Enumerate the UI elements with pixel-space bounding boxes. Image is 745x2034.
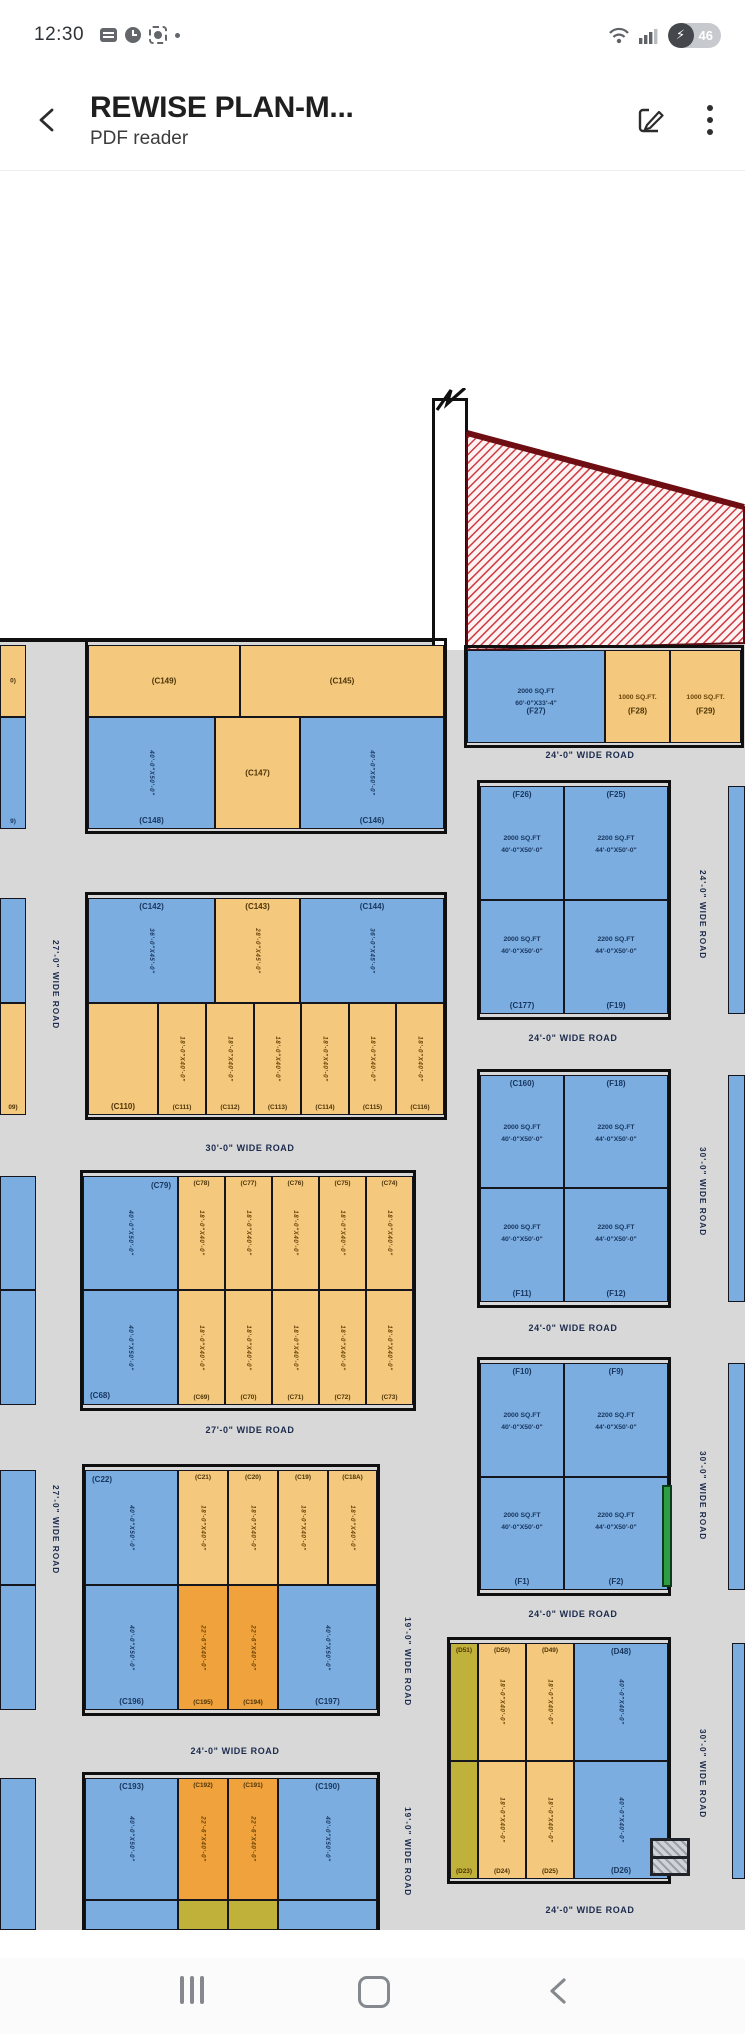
screen-capture-icon	[149, 26, 167, 44]
plot-D24: (D24)18'-0"X40'-0"	[478, 1761, 526, 1879]
plot-label: (C191)	[243, 1782, 263, 1789]
plot-partial	[228, 1900, 278, 1930]
plot-dimensions: 18'-0"X40'-0"	[245, 1210, 252, 1256]
road-label: 24'-0" WIDE ROAD	[505, 750, 675, 760]
plot-partial	[732, 1643, 745, 1879]
battery-percent: 46	[694, 28, 721, 43]
plot-label: (C197)	[315, 1697, 339, 1706]
road-label: 30'-0" WIDE ROAD	[165, 1143, 335, 1153]
plot-dimensions: 18'-0"X40'-0"	[250, 1505, 257, 1551]
plot-F18: (F18)2200 SQ.FT44'-0"X50'-0"	[564, 1075, 668, 1188]
plot-C195: (C195)22'-6"X40'-0"	[178, 1585, 228, 1710]
plot-dimensions: 18'-0"X40'-0"	[292, 1210, 299, 1256]
plot-partial	[0, 1470, 36, 1585]
plot-F27: (F27)2000 SQ.FT60'-0"X33'-4"	[467, 650, 605, 743]
road-label: 27'-0" WIDE ROAD	[165, 1425, 335, 1435]
edit-button[interactable]	[633, 102, 669, 138]
plot-C75: (C75)18'-0"X40'-0"	[319, 1176, 366, 1290]
plot-label: (C18A)	[342, 1474, 363, 1481]
plot-dimensions: 18'-0"X40'-0"	[300, 1505, 307, 1551]
plot-partial	[178, 1900, 228, 1930]
plot-dimensions: 36'-0"X45'-0"	[148, 928, 155, 974]
plot-dimensions: 36'-0"X45'-0"	[369, 928, 376, 974]
plot-dimensions: 18'-0"X40'-0"	[200, 1505, 207, 1551]
plot-C68: (C68)40'-0"X50'-0"	[83, 1290, 178, 1405]
plot-dimensions: 2000 SQ.FT40'-0"X50'-0"	[481, 1222, 563, 1246]
plot-label: (F12)	[606, 1289, 625, 1298]
plot-C72: (C72)18'-0"X40'-0"	[319, 1290, 366, 1405]
plot-dimensions: 2200 SQ.FT44'-0"X50'-0"	[565, 1410, 667, 1434]
plot-dimensions: 18'-0"X40'-0"	[227, 1036, 234, 1082]
system-status-icons: ⚡ 46	[608, 23, 721, 48]
plot-label: (F25)	[606, 790, 625, 799]
road-label: 19'-0" WIDE ROAD	[395, 1592, 413, 1732]
plot-F2: (F2)2200 SQ.FT44'-0"X50'-0"	[564, 1477, 668, 1590]
plot-dimensions: 40'-0"X50'-0"	[127, 1325, 134, 1371]
notification-icons	[100, 26, 180, 44]
plot-C71: (C71)18'-0"X40'-0"	[272, 1290, 319, 1405]
plot-label: (C20)	[245, 1474, 261, 1481]
plot-label: (F2)	[609, 1577, 624, 1586]
plot-C147: (C147)	[215, 717, 300, 829]
plot-F28: (F28)1000 SQ.FT.	[605, 650, 670, 743]
plot-dimensions: 2000 SQ.FT40'-0"X50'-0"	[481, 833, 563, 857]
road-label: 24'-0" WIDE ROAD	[488, 1609, 658, 1619]
plot-C160: (C160)2000 SQ.FT40'-0"X50'-0"	[480, 1075, 564, 1188]
kebab-dot	[707, 105, 713, 111]
plot-label: (C143)	[245, 902, 269, 911]
plot-label: 9)	[10, 818, 16, 825]
plot-C197: (C197)40'-0"X50'-0"	[278, 1585, 377, 1710]
plot-label: (F18)	[606, 1079, 625, 1088]
plot-label: (D51)	[456, 1647, 472, 1654]
green-strip	[662, 1485, 672, 1587]
plot-dimensions: 2000 SQ.FT60'-0"X33'-4"	[468, 686, 604, 710]
plot-C76: (C76)18'-0"X40'-0"	[272, 1176, 319, 1290]
recents-bar	[200, 1976, 204, 2004]
navigation-bar	[0, 1958, 745, 2034]
plot-dimensions: 2200 SQ.FT44'-0"X50'-0"	[565, 934, 667, 958]
plot-label: (D48)	[611, 1647, 631, 1656]
plot-label: (D24)	[494, 1868, 510, 1875]
plot-label: (C142)	[139, 902, 163, 911]
plot-F12: (F12)2200 SQ.FT44'-0"X50'-0"	[564, 1188, 668, 1302]
more-options-button[interactable]	[703, 101, 717, 139]
plot-dimensions: 18'-0"X40'-0"	[349, 1505, 356, 1551]
plot-C115: (C115)18'-0"X40'-0"	[349, 1003, 396, 1115]
plot-C19: (C19)18'-0"X40'-0"	[278, 1470, 328, 1585]
back-button[interactable]	[34, 105, 62, 135]
plot-label: (C192)	[193, 1782, 213, 1789]
kebab-dot	[707, 129, 713, 135]
plot-partial	[85, 1900, 178, 1930]
road-label: 24'-0" WIDE ROAD	[488, 1323, 658, 1333]
plot-C22: (C22)40'-0"X50'-0"	[85, 1470, 178, 1585]
plot-D25: (D25)18'-0"X40'-0"	[526, 1761, 574, 1879]
plot-dimensions: 18'-0"X40'-0"	[198, 1210, 205, 1256]
plot-label: (D26)	[611, 1866, 631, 1875]
plot-dimensions: 1000 SQ.FT.	[671, 692, 740, 704]
clock: 12:30	[34, 24, 84, 46]
plot-dimensions: 22'-6"X40'-0"	[200, 1625, 207, 1671]
plot-label: (C68)	[90, 1391, 110, 1400]
plot-F19: (F19)2200 SQ.FT44'-0"X50'-0"	[564, 900, 668, 1014]
plot-C142: (C142)36'-0"X45'-0"	[88, 898, 215, 1003]
plot-label: (C79)	[151, 1181, 171, 1190]
pdf-page[interactable]: (C149)(C145)(C148)40'-0"X50'-0"(C147)(C1…	[0, 0, 745, 2034]
plot-label: (C194)	[243, 1699, 263, 1706]
plot-dimensions: 40'-0"X50'-0"	[148, 750, 155, 796]
plot-label: (C114)	[315, 1104, 334, 1111]
plot-label: (C75)	[335, 1180, 351, 1187]
plot-F10: (F10)2000 SQ.FT40'-0"X50'-0"	[480, 1363, 564, 1477]
plot-dimensions: 22'-6"X40'-0"	[250, 1625, 257, 1671]
plot-dimensions: 40'-0"X40'-0"	[618, 1797, 625, 1843]
plot-label: (C74)	[382, 1180, 398, 1187]
plot-label: (C21)	[195, 1474, 211, 1481]
plot-dimensions: 18'-0"X40'-0"	[369, 1036, 376, 1082]
plot-C177: (C177)2000 SQ.FT40'-0"X50'-0"	[480, 900, 564, 1014]
plot-dimensions: 40'-0"X50'-0"	[127, 1210, 134, 1256]
plot-dimensions: 18'-0"X40'-0"	[547, 1679, 554, 1725]
recents-bar	[180, 1976, 184, 2004]
plot-D23: (D23)	[450, 1761, 478, 1879]
plot-F1: (F1)2000 SQ.FT40'-0"X50'-0"	[480, 1477, 564, 1590]
plot-label: (C116)	[410, 1104, 429, 1111]
plot-label: (C69)	[194, 1394, 210, 1401]
plot-label: (C146)	[360, 816, 384, 825]
plot-label: (D49)	[542, 1647, 558, 1654]
road-label: 27'-0" WIDE ROAD	[43, 915, 61, 1055]
plot-C113: (C113)18'-0"X40'-0"	[254, 1003, 301, 1115]
plot-dimensions: 18'-0"X40'-0"	[322, 1036, 329, 1082]
plot-partial	[0, 1290, 36, 1405]
plot-C149: (C149)	[88, 645, 240, 717]
plot-partial	[278, 1900, 377, 1930]
plot-label: (C196)	[119, 1697, 143, 1706]
plot-C112: (C112)18'-0"X40'-0"	[206, 1003, 254, 1115]
plot-C20: (C20)18'-0"X40'-0"	[228, 1470, 278, 1585]
document-titles: REWISE PLAN-M... PDF reader	[90, 91, 633, 150]
app-name-label: PDF reader	[90, 128, 633, 150]
plot-dimensions: 2000 SQ.FT40'-0"X50'-0"	[481, 1122, 563, 1146]
plot-C111: (C111)18'-0"X40'-0"	[158, 1003, 206, 1115]
road-label: 19'-0" WIDE ROAD	[395, 1782, 413, 1922]
plot-label: (F11)	[513, 1289, 532, 1298]
plot-dimensions: 2000 SQ.FT40'-0"X50'-0"	[481, 1410, 563, 1434]
plot-partial	[0, 1585, 36, 1710]
plot-F26: (F26)2000 SQ.FT40'-0"X50'-0"	[480, 786, 564, 900]
plot-dimensions: 18'-0"X40'-0"	[274, 1036, 281, 1082]
plot-label: (C76)	[288, 1180, 304, 1187]
plot-label: (C149)	[152, 677, 176, 686]
signal-bars-icon	[639, 26, 659, 44]
plot-partial	[0, 1176, 36, 1290]
road-label: 30'-0" WIDE ROAD	[690, 1704, 708, 1844]
plot-dimensions: 18'-0"X40'-0"	[245, 1325, 252, 1371]
utility-structure	[650, 1838, 690, 1876]
plot-label: 09)	[8, 1104, 17, 1111]
phone-screen: (C149)(C145)(C148)40'-0"X50'-0"(C147)(C1…	[0, 0, 745, 2034]
plot-partial	[0, 898, 26, 1003]
plot-label: (C145)	[330, 677, 354, 686]
plot-dimensions: 40'-0"X50'-0"	[324, 1625, 331, 1671]
message-icon	[100, 28, 117, 42]
plot-label: (C73)	[382, 1394, 398, 1401]
plot-label: (C77)	[241, 1180, 257, 1187]
plot-label: (D50)	[494, 1647, 510, 1654]
battery-indicator: ⚡ 46	[668, 23, 721, 48]
plot-label: (C22)	[92, 1475, 112, 1484]
plot-09: 09)	[0, 1003, 26, 1115]
hatched-reserved-area	[466, 430, 745, 654]
plot-C145: (C145)	[240, 645, 444, 717]
home-button[interactable]	[358, 1976, 390, 2008]
plot-C194: (C194)22'-6"X40'-0"	[228, 1585, 278, 1710]
plot-F11: (F11)2000 SQ.FT40'-0"X50'-0"	[480, 1188, 564, 1302]
plot-label: (F28)	[628, 707, 647, 716]
plot-dimensions: 18'-0"X40'-0"	[386, 1210, 393, 1256]
plot-dimensions: 22'-6"X40'-0"	[250, 1816, 257, 1862]
plot-dimensions: 18'-0"X40'-0"	[339, 1325, 346, 1371]
plot-C69: (C69)18'-0"X40'-0"	[178, 1290, 225, 1405]
plot-label: (C190)	[315, 1782, 339, 1791]
plot-F9: (F9)2200 SQ.FT44'-0"X50'-0"	[564, 1363, 668, 1477]
plot-dimensions: 18'-0"X40'-0"	[179, 1036, 186, 1082]
plot-label: (C72)	[335, 1394, 351, 1401]
plot-F25: (F25)2200 SQ.FT44'-0"X50'-0"	[564, 786, 668, 900]
plot-C74: (C74)18'-0"X40'-0"	[366, 1176, 413, 1290]
plot-C79: (C79)40'-0"X50'-0"	[83, 1176, 178, 1290]
plot-C143: (C143)28'-0"X45'-0"	[215, 898, 300, 1003]
plot-D51: (D51)	[450, 1643, 478, 1761]
plot-dimensions: 18'-0"X40'-0"	[292, 1325, 299, 1371]
plot-label: (F10)	[512, 1367, 531, 1376]
break-line-pole	[432, 398, 468, 650]
plot-C193: (C193)40'-0"X50'-0"	[85, 1778, 178, 1900]
plot-dimensions: 2200 SQ.FT44'-0"X50'-0"	[565, 1122, 667, 1146]
plot-label: (C160)	[510, 1079, 534, 1088]
battery-charging-icon: ⚡	[668, 23, 694, 48]
road-label: 30'-0" WIDE ROAD	[690, 1122, 708, 1262]
break-mark	[435, 388, 469, 414]
app-bar: REWISE PLAN-M... PDF reader	[0, 70, 745, 170]
plot-dimensions: 40'-0"X50'-0"	[128, 1816, 135, 1862]
road-label: 24'-0" WIDE ROAD	[488, 1033, 658, 1043]
road-label: 27'-0" WIDE ROAD	[43, 1460, 61, 1600]
plot-label: (C193)	[119, 1782, 143, 1791]
plot-dimensions: 18'-0"X40'-0"	[499, 1797, 506, 1843]
plot-label: 0)	[10, 678, 16, 685]
status-bar: 12:30 ⚡ 46	[0, 0, 745, 70]
plot-dimensions: 1000 SQ.FT.	[606, 692, 669, 704]
recents-button[interactable]	[180, 1976, 204, 2004]
plot-label: (C195)	[193, 1699, 213, 1706]
plot-C110: (C110)	[88, 1003, 158, 1115]
plot-label: (C144)	[360, 902, 384, 911]
plot-label: (F26)	[512, 790, 531, 799]
kebab-dot	[707, 117, 713, 123]
plot-partial	[728, 1363, 745, 1590]
plot-label: (C113)	[268, 1104, 287, 1111]
road-label: 30'-0" WIDE ROAD	[690, 1426, 708, 1566]
plot-C148: (C148)40'-0"X50'-0"	[88, 717, 215, 829]
plot-label: (F9)	[609, 1367, 624, 1376]
plot-D48: (D48)40'-0"X40'-0"	[574, 1643, 668, 1761]
plot-dimensions: 2000 SQ.FT40'-0"X50'-0"	[481, 1511, 563, 1535]
road-label: 24'-0" WIDE ROAD	[150, 1746, 320, 1756]
plot-C191: (C191)22'-6"X40'-0"	[228, 1778, 278, 1900]
plot-dimensions: 40'-0"X50'-0"	[369, 750, 376, 796]
data-usage-icon	[125, 27, 141, 43]
plot-dimensions: 2200 SQ.FT44'-0"X50'-0"	[565, 833, 667, 857]
document-title: REWISE PLAN-M...	[90, 91, 633, 125]
plot-label: (C147)	[245, 769, 269, 778]
plot-dimensions: 18'-0"X40'-0"	[417, 1036, 424, 1082]
plot-label: (C19)	[295, 1474, 311, 1481]
plot-dimensions: 18'-0"X40'-0"	[339, 1210, 346, 1256]
plot-C190: (C190)40'-0"X50'-0"	[278, 1778, 377, 1900]
plot-9: 9)	[0, 717, 26, 829]
plot-C21: (C21)18'-0"X40'-0"	[178, 1470, 228, 1585]
plot-dimensions: 18'-0"X40'-0"	[198, 1325, 205, 1371]
plot-D50: (D50)18'-0"X40'-0"	[478, 1643, 526, 1761]
plot-dimensions: 2200 SQ.FT44'-0"X50'-0"	[565, 1511, 667, 1535]
plot-dimensions: 2200 SQ.FT44'-0"X50'-0"	[565, 1222, 667, 1246]
plot-label: (D23)	[456, 1868, 472, 1875]
recents-bar	[190, 1976, 194, 2004]
plot-label: (C177)	[510, 1001, 534, 1010]
plot-label: (C78)	[194, 1180, 210, 1187]
road-label: 24'-0" WIDE ROAD	[690, 845, 708, 985]
plot-C73: (C73)18'-0"X40'-0"	[366, 1290, 413, 1405]
plot-C18A: (C18A)18'-0"X40'-0"	[328, 1470, 377, 1585]
plan-boundary-line	[0, 638, 446, 642]
plot-label: (F1)	[515, 1577, 530, 1586]
plot-dimensions: 18'-0"X40'-0"	[386, 1325, 393, 1371]
plot-label: (C112)	[220, 1104, 239, 1111]
plot-partial	[0, 1778, 36, 1930]
plot-label: (F29)	[696, 707, 715, 716]
plot-dimensions: 18'-0"X40'-0"	[499, 1679, 506, 1725]
plot-dimensions: 40'-0"X50'-0"	[128, 1505, 135, 1551]
plot-label: (D25)	[542, 1868, 558, 1875]
plot-dimensions: 18'-0"X40'-0"	[547, 1797, 554, 1843]
plot-label: (C115)	[363, 1104, 382, 1111]
plot-F29: (F29)1000 SQ.FT.	[670, 650, 741, 743]
plot-label: (C111)	[173, 1104, 192, 1111]
plot-C146: (C146)40'-0"X50'-0"	[300, 717, 444, 829]
plot-D49: (D49)18'-0"X40'-0"	[526, 1643, 574, 1761]
plot-dimensions: 2000 SQ.FT40'-0"X50'-0"	[481, 934, 563, 958]
plot-C70: (C70)18'-0"X40'-0"	[225, 1290, 272, 1405]
notification-dot-icon	[175, 33, 180, 38]
plot-dimensions: 40'-0"X40'-0"	[618, 1679, 625, 1725]
plot-label: (F19)	[606, 1001, 625, 1010]
plot-label: (C71)	[288, 1394, 304, 1401]
plot-0: 0)	[0, 645, 26, 717]
plot-dimensions: 40'-0"X50'-0"	[324, 1816, 331, 1862]
plot-dimensions: 22'-6"X40'-0"	[200, 1816, 207, 1862]
plot-C78: (C78)18'-0"X40'-0"	[178, 1176, 225, 1290]
nav-back-button[interactable]	[546, 1976, 570, 2006]
plot-partial	[728, 786, 745, 1014]
plot-C196: (C196)40'-0"X50'-0"	[85, 1585, 178, 1710]
plot-C116: (C116)18'-0"X40'-0"	[396, 1003, 444, 1115]
plot-C114: (C114)18'-0"X40'-0"	[301, 1003, 349, 1115]
plot-label: (C148)	[139, 816, 163, 825]
road-label: 24'-0" WIDE ROAD	[505, 1905, 675, 1915]
plot-label: (C70)	[241, 1394, 257, 1401]
wifi-icon	[608, 26, 630, 44]
plot-C77: (C77)18'-0"X40'-0"	[225, 1176, 272, 1290]
plot-C144: (C144)36'-0"X45'-0"	[300, 898, 444, 1003]
plot-dimensions: 40'-0"X50'-0"	[128, 1625, 135, 1671]
plot-dimensions: 28'-0"X45'-0"	[254, 928, 261, 974]
plot-partial	[728, 1075, 745, 1302]
plot-C192: (C192)22'-6"X40'-0"	[178, 1778, 228, 1900]
plot-label: (C110)	[111, 1102, 135, 1111]
